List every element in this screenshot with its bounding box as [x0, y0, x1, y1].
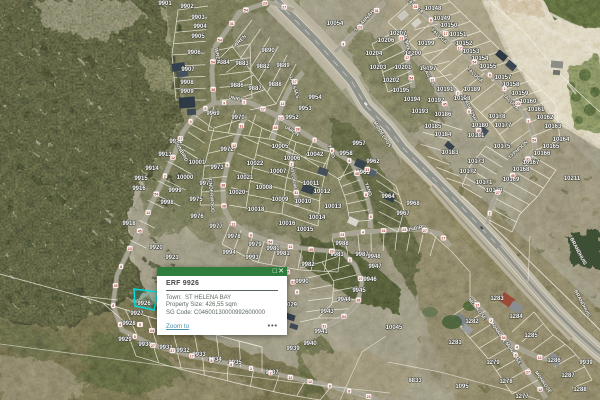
- svg-text:23: 23: [330, 250, 334, 254]
- svg-text:1283: 1283: [490, 296, 504, 302]
- svg-text:4: 4: [516, 346, 518, 350]
- svg-text:10204: 10204: [366, 51, 383, 57]
- svg-text:9918: 9918: [122, 221, 136, 227]
- svg-text:45: 45: [138, 229, 142, 233]
- svg-text:45: 45: [511, 174, 515, 178]
- svg-text:17: 17: [475, 303, 479, 307]
- svg-text:9967: 9967: [396, 211, 410, 217]
- svg-text:9889: 9889: [276, 63, 290, 69]
- svg-text:10172: 10172: [460, 169, 477, 175]
- svg-text:4: 4: [119, 323, 121, 327]
- svg-text:9953: 9953: [298, 106, 312, 112]
- svg-text:31: 31: [322, 325, 326, 329]
- svg-text:23: 23: [516, 102, 520, 106]
- svg-text:17: 17: [190, 355, 194, 359]
- svg-text:2: 2: [489, 212, 491, 216]
- svg-text:2: 2: [527, 119, 529, 123]
- svg-text:12: 12: [288, 376, 292, 380]
- svg-text:31: 31: [230, 22, 234, 26]
- svg-text:10168: 10168: [513, 167, 530, 173]
- svg-text:9979: 9979: [248, 242, 262, 248]
- svg-text:10178: 10178: [489, 114, 506, 120]
- svg-text:9962: 9962: [366, 159, 380, 165]
- svg-text:54: 54: [218, 38, 222, 42]
- svg-text:54: 54: [211, 60, 215, 64]
- svg-text:1286: 1286: [547, 358, 561, 364]
- svg-text:38: 38: [296, 128, 300, 132]
- svg-text:9976: 9976: [190, 214, 204, 220]
- svg-text:9882: 9882: [256, 64, 270, 70]
- svg-text:17: 17: [261, 108, 265, 112]
- svg-text:9: 9: [468, 110, 470, 114]
- svg-text:9994: 9994: [222, 250, 236, 256]
- svg-text:2: 2: [349, 258, 351, 262]
- svg-text:10153: 10153: [463, 49, 480, 55]
- svg-text:27: 27: [423, 229, 427, 233]
- svg-text:2: 2: [490, 319, 492, 323]
- svg-text:54: 54: [268, 240, 272, 244]
- svg-text:10150: 10150: [441, 23, 458, 29]
- svg-text:8: 8: [230, 363, 232, 367]
- svg-text:54: 54: [532, 139, 536, 143]
- svg-text:10202: 10202: [383, 78, 400, 84]
- svg-text:27: 27: [178, 137, 182, 141]
- svg-text:2: 2: [243, 101, 245, 105]
- svg-text:9887: 9887: [248, 86, 262, 92]
- svg-text:9977: 9977: [209, 224, 223, 230]
- svg-text:10194: 10194: [404, 97, 421, 103]
- svg-text:9944: 9944: [337, 297, 351, 303]
- svg-text:10148: 10148: [425, 6, 442, 12]
- svg-text:31: 31: [431, 78, 435, 82]
- svg-text:10005: 10005: [272, 144, 289, 150]
- svg-text:27: 27: [170, 349, 174, 353]
- svg-text:10021: 10021: [237, 175, 254, 181]
- svg-text:54: 54: [244, 9, 248, 13]
- svg-text:10165: 10165: [543, 144, 560, 150]
- svg-text:10016: 10016: [279, 221, 296, 227]
- svg-text:10054: 10054: [327, 21, 344, 27]
- svg-text:2: 2: [314, 139, 316, 143]
- svg-text:54: 54: [154, 193, 158, 197]
- svg-text:45: 45: [114, 284, 118, 288]
- svg-text:8: 8: [211, 359, 213, 363]
- svg-text:9972: 9972: [220, 147, 234, 153]
- svg-text:23: 23: [340, 233, 344, 237]
- svg-text:9928: 9928: [122, 321, 136, 327]
- svg-text:1288: 1288: [573, 387, 587, 393]
- svg-text:45: 45: [309, 248, 313, 252]
- svg-text:12: 12: [171, 156, 175, 160]
- svg-text:10155: 10155: [480, 64, 497, 70]
- svg-text:10185: 10185: [425, 124, 442, 130]
- svg-text:9920: 9920: [149, 245, 163, 251]
- svg-text:10042: 10042: [307, 152, 324, 158]
- svg-text:8: 8: [430, 19, 432, 23]
- svg-text:10201: 10201: [395, 65, 412, 71]
- svg-text:9914: 9914: [145, 166, 159, 172]
- svg-text:4: 4: [342, 42, 344, 46]
- svg-text:10015: 10015: [297, 227, 314, 233]
- svg-text:10160: 10160: [520, 99, 537, 105]
- svg-text:10000: 10000: [177, 175, 194, 181]
- svg-text:10018: 10018: [248, 207, 265, 213]
- svg-text:31: 31: [294, 191, 298, 195]
- svg-text:17: 17: [444, 32, 448, 36]
- svg-text:2: 2: [504, 87, 506, 91]
- svg-text:45: 45: [355, 172, 359, 176]
- svg-text:10181: 10181: [468, 133, 485, 139]
- svg-text:24: 24: [150, 329, 154, 333]
- svg-text:17: 17: [405, 56, 409, 60]
- svg-text:2: 2: [457, 92, 459, 96]
- svg-text:10161: 10161: [528, 107, 545, 113]
- svg-text:1287: 1287: [561, 373, 575, 379]
- svg-text:10014: 10014: [309, 215, 326, 221]
- svg-text:9902: 9902: [180, 4, 194, 10]
- svg-text:9932: 9932: [176, 348, 190, 354]
- svg-text:8: 8: [250, 233, 252, 237]
- svg-text:10012: 10012: [314, 189, 331, 195]
- svg-text:2: 2: [250, 367, 252, 371]
- svg-text:9988: 9988: [335, 241, 349, 247]
- svg-text:9886: 9886: [230, 83, 244, 89]
- svg-text:38: 38: [221, 184, 225, 188]
- svg-text:9990: 9990: [295, 279, 309, 285]
- svg-text:10171: 10171: [476, 180, 493, 186]
- svg-text:10162: 10162: [537, 115, 554, 121]
- svg-text:9981: 9981: [276, 251, 290, 257]
- svg-text:10007: 10007: [270, 169, 287, 175]
- svg-text:10169: 10169: [503, 177, 520, 183]
- svg-text:10183: 10183: [442, 150, 459, 156]
- svg-text:10189: 10189: [464, 87, 481, 93]
- svg-text:10001: 10001: [189, 160, 206, 166]
- svg-text:9927: 9927: [130, 311, 144, 317]
- svg-text:10151: 10151: [450, 32, 467, 38]
- svg-text:9926: 9926: [137, 301, 151, 307]
- svg-text:9904: 9904: [193, 24, 207, 30]
- svg-text:31: 31: [365, 168, 369, 172]
- svg-text:10199: 10199: [418, 41, 435, 47]
- svg-text:23: 23: [358, 26, 362, 30]
- svg-text:8: 8: [329, 385, 331, 389]
- svg-text:45: 45: [274, 126, 278, 130]
- svg-text:10193: 10193: [412, 109, 429, 115]
- svg-text:9906: 9906: [187, 50, 201, 56]
- svg-text:9952: 9952: [285, 115, 299, 121]
- svg-text:9946: 9946: [363, 277, 377, 283]
- svg-text:9958: 9958: [339, 151, 353, 157]
- svg-text:9: 9: [226, 163, 228, 167]
- svg-text:12: 12: [232, 144, 236, 148]
- svg-text:9929: 9929: [118, 337, 132, 343]
- svg-text:54: 54: [472, 60, 476, 64]
- svg-text:9964: 9964: [381, 194, 395, 200]
- svg-text:1278: 1278: [499, 379, 513, 385]
- svg-text:1279: 1279: [486, 360, 500, 366]
- svg-text:9947: 9947: [368, 264, 382, 270]
- svg-text:2: 2: [291, 163, 293, 167]
- svg-text:10045: 10045: [386, 325, 403, 331]
- svg-text:9982: 9982: [301, 262, 315, 268]
- svg-text:10175: 10175: [494, 144, 511, 150]
- svg-text:12: 12: [308, 380, 312, 384]
- svg-text:31: 31: [239, 124, 243, 128]
- svg-text:9969: 9969: [206, 111, 220, 117]
- svg-text:10009: 10009: [272, 197, 289, 203]
- svg-text:5: 5: [139, 323, 141, 327]
- svg-text:9921: 9921: [165, 255, 179, 261]
- svg-text:31: 31: [382, 229, 386, 233]
- svg-text:8: 8: [365, 193, 367, 197]
- svg-text:27: 27: [282, 6, 286, 10]
- svg-text:54: 54: [342, 315, 346, 319]
- svg-text:1277: 1277: [515, 394, 529, 400]
- svg-text:1282: 1282: [465, 319, 479, 325]
- svg-text:8: 8: [348, 390, 350, 394]
- svg-text:31: 31: [526, 157, 530, 161]
- svg-text:4: 4: [348, 159, 350, 163]
- svg-text:9907: 9907: [181, 67, 195, 73]
- svg-text:10166: 10166: [534, 151, 551, 157]
- svg-text:45: 45: [443, 102, 447, 106]
- svg-text:38: 38: [356, 299, 360, 303]
- svg-text:23: 23: [128, 247, 132, 251]
- svg-text:27: 27: [526, 371, 530, 375]
- svg-text:9973: 9973: [210, 165, 224, 171]
- svg-text:10022: 10022: [247, 161, 264, 167]
- svg-text:2: 2: [270, 371, 272, 375]
- svg-text:9993: 9993: [245, 255, 259, 261]
- svg-text:10164: 10164: [553, 137, 570, 143]
- svg-text:54: 54: [409, 76, 413, 80]
- svg-text:9939: 9939: [579, 360, 593, 366]
- svg-text:9903: 9903: [191, 15, 205, 21]
- svg-text:12: 12: [538, 356, 542, 360]
- svg-text:23: 23: [402, 228, 406, 232]
- svg-text:8: 8: [515, 354, 517, 358]
- svg-text:12: 12: [279, 117, 283, 121]
- svg-text:10186: 10186: [435, 112, 452, 118]
- svg-text:9941: 9941: [314, 329, 328, 335]
- svg-text:27: 27: [359, 277, 363, 281]
- svg-text:2: 2: [164, 174, 166, 178]
- svg-text:9916: 9916: [132, 186, 146, 192]
- svg-text:9890: 9890: [261, 48, 275, 54]
- svg-text:9905: 9905: [191, 34, 205, 40]
- svg-text:9945: 9945: [352, 288, 366, 294]
- svg-text:8: 8: [489, 74, 491, 78]
- svg-text:45: 45: [477, 129, 481, 133]
- svg-text:9: 9: [223, 101, 225, 105]
- svg-text:54: 54: [502, 336, 506, 340]
- svg-text:8: 8: [370, 215, 372, 219]
- svg-text:12: 12: [146, 211, 150, 215]
- svg-text:12: 12: [281, 102, 285, 106]
- svg-text:10013: 10013: [325, 204, 342, 210]
- svg-text:9943: 9943: [320, 309, 334, 315]
- svg-text:9915: 9915: [134, 176, 148, 182]
- svg-text:9: 9: [204, 107, 206, 111]
- svg-text:10203: 10203: [370, 65, 387, 71]
- svg-text:9883: 9883: [235, 61, 249, 67]
- svg-text:10184: 10184: [435, 132, 452, 138]
- svg-text:10163: 10163: [545, 124, 562, 130]
- svg-text:9939: 9939: [286, 346, 300, 352]
- svg-text:9957: 9957: [352, 141, 366, 147]
- svg-text:9975: 9975: [189, 197, 203, 203]
- svg-text:10011: 10011: [303, 181, 320, 187]
- svg-text:10157: 10157: [495, 75, 512, 81]
- svg-text:8: 8: [112, 304, 114, 308]
- svg-text:9970: 9970: [231, 115, 245, 121]
- svg-text:9901: 9901: [158, 1, 172, 7]
- svg-text:9998: 9998: [160, 200, 174, 206]
- svg-text:9: 9: [296, 291, 298, 295]
- svg-text:1284: 1284: [509, 314, 523, 320]
- svg-text:38: 38: [222, 204, 226, 208]
- svg-text:23: 23: [399, 36, 403, 40]
- svg-text:10206: 10206: [378, 38, 395, 44]
- svg-text:9948: 9948: [367, 254, 381, 260]
- svg-text:10020: 10020: [229, 190, 246, 196]
- svg-text:8: 8: [331, 149, 333, 153]
- svg-text:1281: 1281: [448, 340, 462, 346]
- svg-text:10173: 10173: [468, 159, 485, 165]
- svg-text:10191: 10191: [437, 87, 454, 93]
- svg-text:12: 12: [538, 388, 542, 392]
- svg-text:1285: 1285: [524, 333, 538, 339]
- svg-text:27: 27: [496, 191, 500, 195]
- svg-text:38: 38: [211, 88, 215, 92]
- svg-text:10195: 10195: [393, 88, 410, 94]
- svg-text:9978: 9978: [227, 234, 241, 240]
- svg-text:10008: 10008: [256, 185, 273, 191]
- svg-text:23: 23: [367, 395, 371, 399]
- svg-text:9940: 9940: [303, 341, 317, 347]
- svg-text:4: 4: [362, 231, 364, 235]
- svg-text:8: 8: [120, 265, 122, 269]
- svg-text:10177: 10177: [495, 123, 512, 129]
- svg-text:9999: 9999: [168, 188, 182, 194]
- svg-text:12: 12: [288, 245, 292, 249]
- svg-text:31: 31: [375, 9, 379, 13]
- svg-text:9908: 9908: [180, 80, 194, 86]
- svg-text:17: 17: [458, 46, 462, 50]
- svg-text:9909: 9909: [180, 89, 194, 95]
- svg-text:10211: 10211: [564, 176, 581, 182]
- svg-text:17: 17: [293, 80, 297, 84]
- svg-text:10159: 10159: [512, 91, 529, 97]
- svg-text:9888: 9888: [268, 82, 282, 88]
- svg-text:7: 7: [287, 271, 289, 275]
- svg-text:10010: 10010: [295, 199, 312, 205]
- svg-text:27: 27: [441, 237, 445, 241]
- svg-text:27: 27: [151, 344, 155, 348]
- svg-text:12: 12: [231, 222, 235, 226]
- svg-text:8: 8: [134, 335, 136, 339]
- svg-text:8833: 8833: [408, 378, 422, 384]
- svg-text:4: 4: [190, 120, 192, 124]
- svg-text:1095: 1095: [455, 384, 469, 390]
- svg-text:23: 23: [263, 2, 267, 6]
- svg-text:31: 31: [414, 5, 418, 9]
- svg-text:029: 029: [287, 303, 298, 309]
- svg-text:10149: 10149: [434, 16, 451, 22]
- svg-text:9968: 9968: [406, 201, 420, 207]
- svg-text:9954: 9954: [308, 95, 322, 101]
